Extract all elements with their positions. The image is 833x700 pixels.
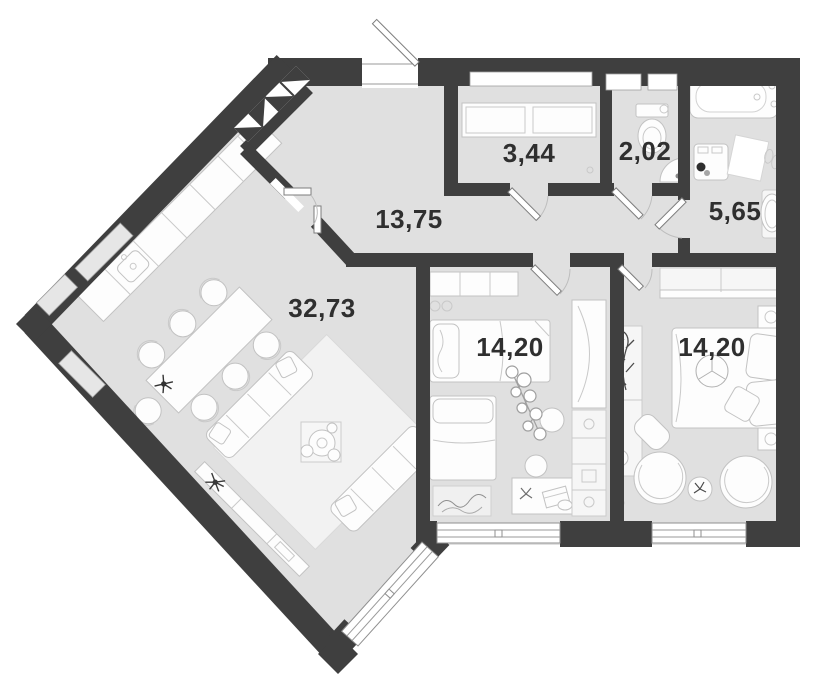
bedroom1-rug	[433, 486, 491, 516]
bedroom1-wardrobe	[430, 272, 518, 296]
bedroom2-wardrobe	[660, 268, 782, 298]
floor-plan-canvas: 32,73 13,75 3,44 2,02 5,65 14,20 14,20	[0, 0, 833, 700]
label-wc: 2,02	[619, 136, 672, 166]
entrance-door	[362, 19, 419, 88]
label-hallway: 13,75	[375, 204, 443, 234]
label-bedroom-2: 14,20	[678, 332, 746, 362]
bedroom1-bed-2	[430, 396, 496, 480]
bedroom1-pouf	[540, 408, 564, 432]
label-bathroom: 5,65	[709, 196, 762, 226]
label-living-kitchen: 32,73	[288, 293, 356, 323]
window-bedroom2	[652, 523, 746, 543]
coffee-table	[301, 422, 341, 462]
label-bedroom-1: 14,20	[476, 332, 544, 362]
washing-machine-icon	[694, 144, 728, 180]
floor-plan-page: 32,73 13,75 3,44 2,02 5,65 14,20 14,20	[0, 0, 833, 700]
bedroom1-cabinet	[572, 300, 606, 408]
label-wardrobe: 3,44	[503, 138, 556, 168]
window-bedroom1	[437, 523, 560, 543]
bedroom1-shelf	[572, 410, 606, 516]
